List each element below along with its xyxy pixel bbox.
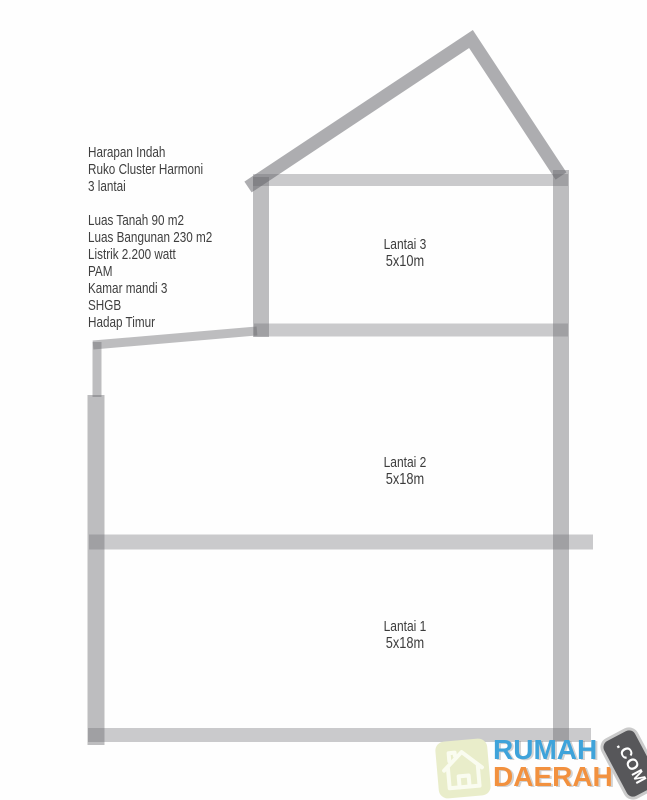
logo-com-text: .COM [612,739,647,788]
floor2-name: Lantai 2 [341,454,469,471]
info-line-blank [88,195,212,212]
canopy-line [93,331,257,345]
info-line: Ruko Cluster Harmoni [88,161,212,178]
floor2-label: Lantai 2 5x18m [341,454,469,489]
info-line: Luas Tanah 90 m2 [88,212,212,229]
house-icon [435,738,492,799]
info-line: SHGB [88,297,212,314]
info-line: PAM [88,263,212,280]
info-line: Listrik 2.200 watt [88,246,212,263]
logo-word-rumah: RUMAH [493,736,613,763]
page: Harapan Indah Ruko Cluster Harmoni 3 lan… [0,0,647,800]
house-icon-glyph [439,743,487,795]
logo-word-daerah: DAERAH [493,763,613,790]
info-line: Luas Bangunan 230 m2 [88,229,212,246]
roof-line [248,39,561,187]
floor1-size: 5x18m [341,635,469,653]
floor3-label: Lantai 3 5x10m [341,236,469,271]
floor1-label: Lantai 1 5x18m [341,618,469,653]
floor3-name: Lantai 3 [341,236,469,253]
info-line: 3 lantai [88,178,212,195]
floor2-size: 5x18m [341,471,469,489]
floor3-size: 5x10m [341,253,469,271]
property-info: Harapan Indah Ruko Cluster Harmoni 3 lan… [88,144,212,331]
info-line: Hadap Timur [88,314,212,331]
building-section-diagram [0,0,647,800]
logo-wordmark: RUMAH DAERAH [493,736,613,790]
info-line: Harapan Indah [88,144,212,161]
info-line: Kamar mandi 3 [88,280,212,297]
rumahdaerah-logo: RUMAH DAERAH .COM [436,736,647,800]
floor1-name: Lantai 1 [341,618,469,635]
